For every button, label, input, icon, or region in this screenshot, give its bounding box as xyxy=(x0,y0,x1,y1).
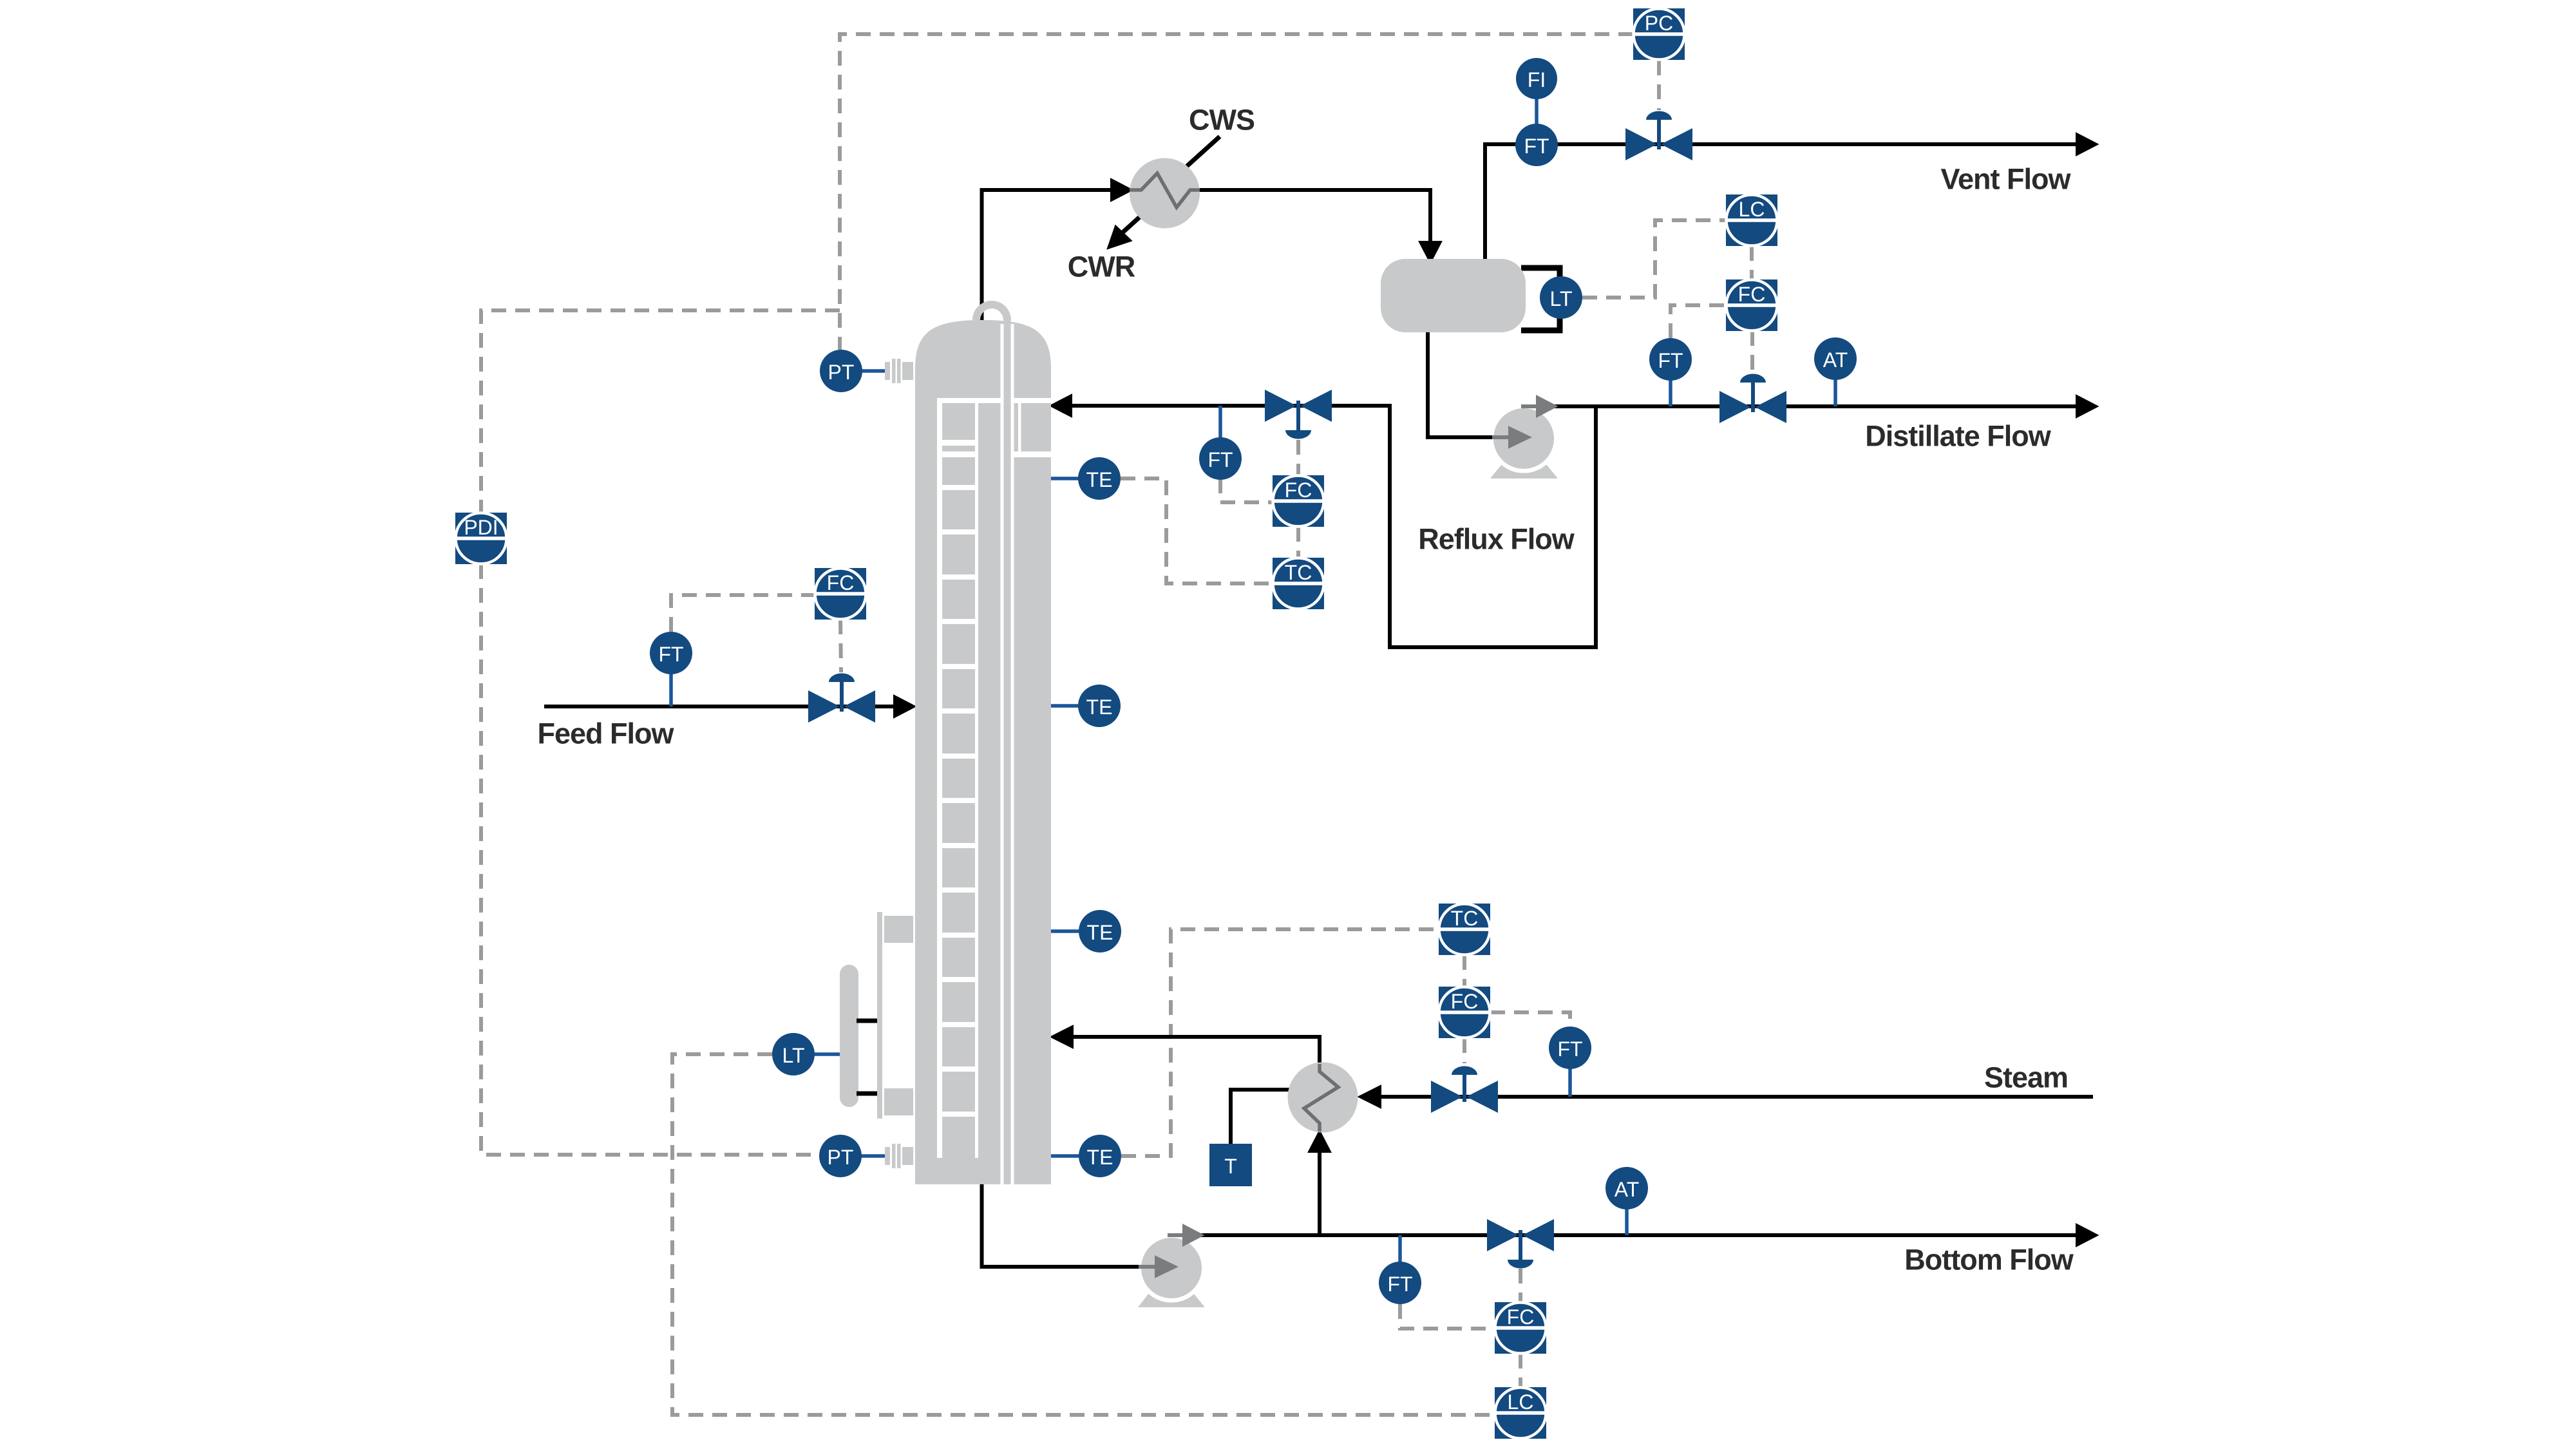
svg-text:FC: FC xyxy=(1451,990,1479,1013)
svg-text:Steam: Steam xyxy=(1984,1061,2068,1094)
svg-text:CWR: CWR xyxy=(1068,251,1135,283)
svg-text:TE: TE xyxy=(1087,1146,1113,1169)
svg-text:TE: TE xyxy=(1087,921,1113,944)
svg-text:FC: FC xyxy=(827,571,855,594)
svg-text:PT: PT xyxy=(828,1146,854,1169)
svg-text:PT: PT xyxy=(828,361,855,384)
svg-text:FI: FI xyxy=(1528,68,1546,91)
svg-text:LT: LT xyxy=(1550,287,1573,310)
svg-text:Feed Flow: Feed Flow xyxy=(537,717,674,750)
svg-text:TE: TE xyxy=(1086,696,1113,719)
svg-text:FT: FT xyxy=(1524,135,1549,158)
svg-text:LC: LC xyxy=(1739,198,1765,221)
svg-text:PDI: PDI xyxy=(464,516,498,539)
svg-text:Vent Flow: Vent Flow xyxy=(1940,163,2071,196)
svg-text:FC: FC xyxy=(1507,1305,1535,1329)
svg-text:FC: FC xyxy=(1738,283,1766,306)
svg-text:TC: TC xyxy=(1285,561,1312,584)
svg-text:FT: FT xyxy=(1658,349,1683,372)
svg-text:FT: FT xyxy=(1207,448,1233,471)
svg-text:Bottom Flow: Bottom Flow xyxy=(1904,1244,2074,1276)
svg-text:LT: LT xyxy=(782,1044,805,1067)
svg-text:T: T xyxy=(1224,1155,1237,1178)
svg-text:AT: AT xyxy=(1823,348,1848,372)
svg-text:TE: TE xyxy=(1086,468,1113,491)
svg-text:FT: FT xyxy=(1557,1037,1582,1061)
svg-text:Reflux Flow: Reflux Flow xyxy=(1418,523,1575,556)
svg-text:FT: FT xyxy=(658,643,683,666)
svg-text:PC: PC xyxy=(1645,12,1673,35)
svg-text:FC: FC xyxy=(1285,478,1312,502)
svg-text:CWS: CWS xyxy=(1189,104,1255,137)
svg-text:FT: FT xyxy=(1387,1273,1412,1296)
svg-text:LC: LC xyxy=(1508,1390,1534,1414)
svg-text:Distillate Flow: Distillate Flow xyxy=(1865,420,2052,453)
svg-text:TC: TC xyxy=(1451,907,1479,930)
svg-text:AT: AT xyxy=(1615,1178,1640,1201)
